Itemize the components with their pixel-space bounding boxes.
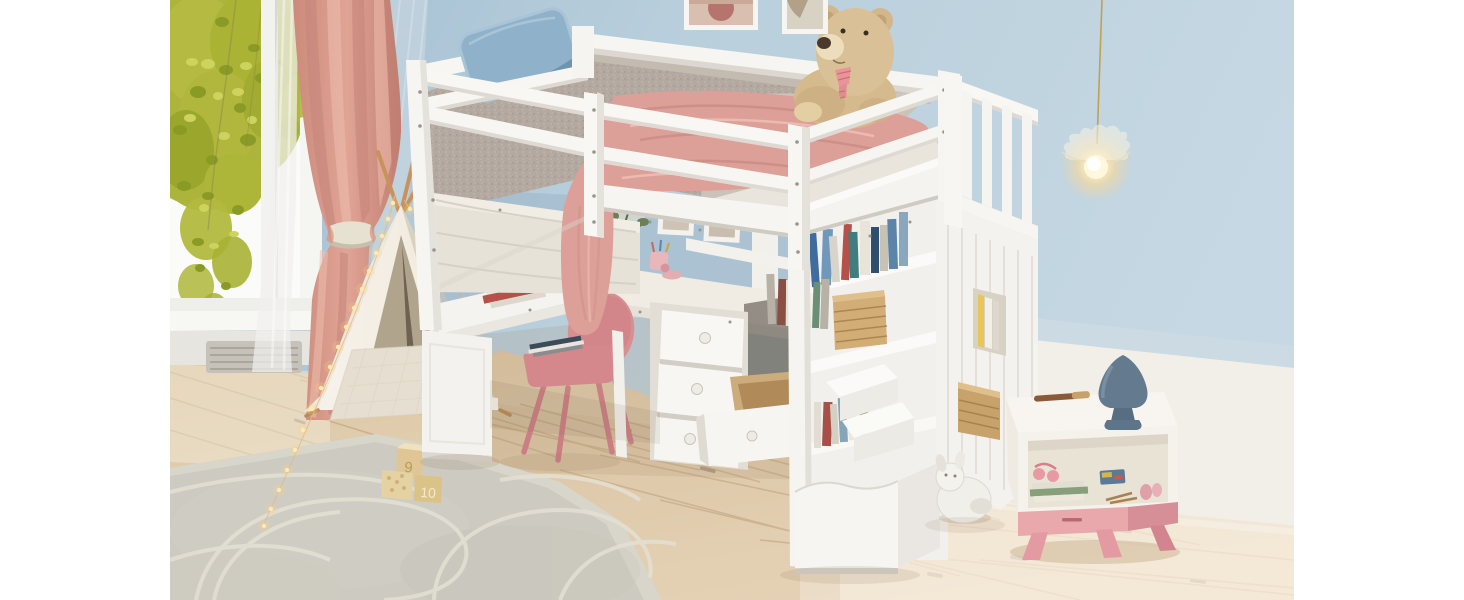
- svg-text:9: 9: [404, 459, 414, 477]
- svg-text:10: 10: [420, 484, 437, 501]
